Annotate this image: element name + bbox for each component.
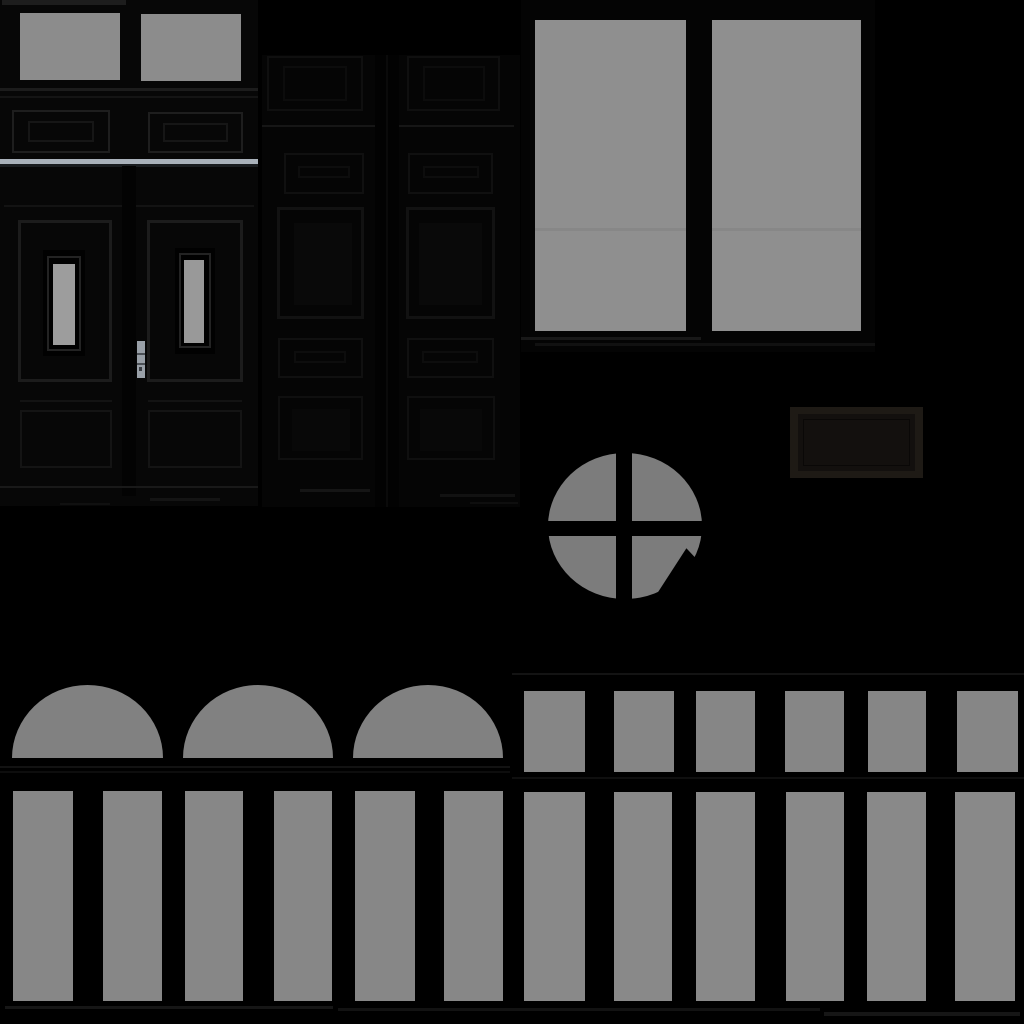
tall-window-left-2 [103, 791, 162, 1001]
tall-window-left-6 [444, 791, 503, 1001]
double-door-scuff-2 [440, 494, 515, 497]
left-door-scuff-1 [150, 498, 220, 501]
row-divider-line [512, 777, 1024, 779]
left-door-bottom-line [0, 486, 258, 488]
door-handle-notch-lower [137, 363, 145, 365]
window-left-glass [535, 20, 686, 331]
double-door-top-panel-left-inner [283, 66, 347, 101]
tall-window-right-4 [786, 792, 844, 1001]
arched-window-3 [353, 685, 503, 758]
left-door-upper-panel-left-inner [28, 121, 94, 142]
bottom-sill-line-right [824, 1012, 1020, 1016]
double-door-small-slot-right [423, 166, 479, 178]
arched-window-2 [183, 685, 333, 758]
texture-atlas [0, 0, 1024, 1024]
arch-sill-line-2 [0, 771, 510, 773]
tall-window-right-3 [696, 792, 755, 1001]
left-door-transom-sill-line [0, 88, 258, 91]
double-door-main-panel-left-core [294, 223, 352, 305]
plaque-inner-line [803, 419, 910, 466]
round-window-mullion-horizontal [533, 521, 717, 536]
short-window-2 [614, 691, 674, 772]
double-door-stile-line [386, 55, 388, 507]
left-door-lower-panel-right [148, 410, 242, 468]
short-window-5 [868, 691, 926, 772]
tall-window-left-3 [185, 791, 243, 1001]
window-right-glass [712, 20, 861, 331]
tall-window-right-2 [614, 792, 672, 1001]
double-door-scuff-3 [470, 502, 518, 504]
double-door-small-slot-left [298, 166, 350, 178]
short-window-3 [696, 691, 755, 772]
double-door-mid-slot-left [294, 351, 346, 363]
tall-window-right-1 [524, 792, 585, 1001]
bottom-sill-line-mid [338, 1008, 820, 1011]
left-door-transom-left-glass [20, 13, 120, 80]
tall-window-left-5 [355, 791, 415, 1001]
window-sill-lower [535, 343, 875, 346]
door-handle-plate [137, 341, 145, 378]
window-right-glass-seam [712, 228, 861, 231]
left-door-scuff-2 [60, 503, 110, 505]
tall-window-right-6 [955, 792, 1015, 1001]
tall-window-left-4 [274, 791, 332, 1001]
left-door-lower-rail-right [148, 400, 242, 402]
double-door-mid-slot-right [422, 351, 478, 363]
door-handle-keyhole [139, 367, 142, 371]
left-door-transom-right-glass [141, 14, 241, 81]
double-door-top-panel-right-inner [423, 66, 485, 101]
left-door-rail-line [0, 96, 258, 98]
bottom-sill-line-left [5, 1006, 333, 1009]
tall-window-right-5 [867, 792, 926, 1001]
short-window-4 [785, 691, 844, 772]
double-door-scuff-1 [300, 489, 370, 492]
door-handle-notch-upper [137, 353, 145, 355]
left-door-top-rail [2, 0, 126, 5]
double-door-bottom-panel-left-core [292, 409, 350, 451]
double-door-bottom-panel-right-core [420, 409, 482, 451]
left-door-lower-panel-left [20, 410, 112, 468]
left-door-lower-rail-left [20, 400, 112, 402]
arched-window-1 [12, 685, 163, 758]
left-door-center-stile [122, 166, 136, 496]
window-sill-upper [521, 337, 701, 340]
window-left-glass-seam [535, 228, 686, 231]
left-door-glass-left [53, 264, 75, 345]
left-door-glass-right [184, 260, 204, 343]
upper-row-frame-line [512, 673, 1024, 675]
double-door-main-panel-right-core [419, 223, 482, 305]
short-window-1 [524, 691, 585, 772]
tall-window-left-1 [13, 791, 73, 1001]
left-door-upper-panel-right-inner [163, 123, 228, 142]
short-window-6 [957, 691, 1018, 772]
arch-sill-line [0, 766, 510, 768]
